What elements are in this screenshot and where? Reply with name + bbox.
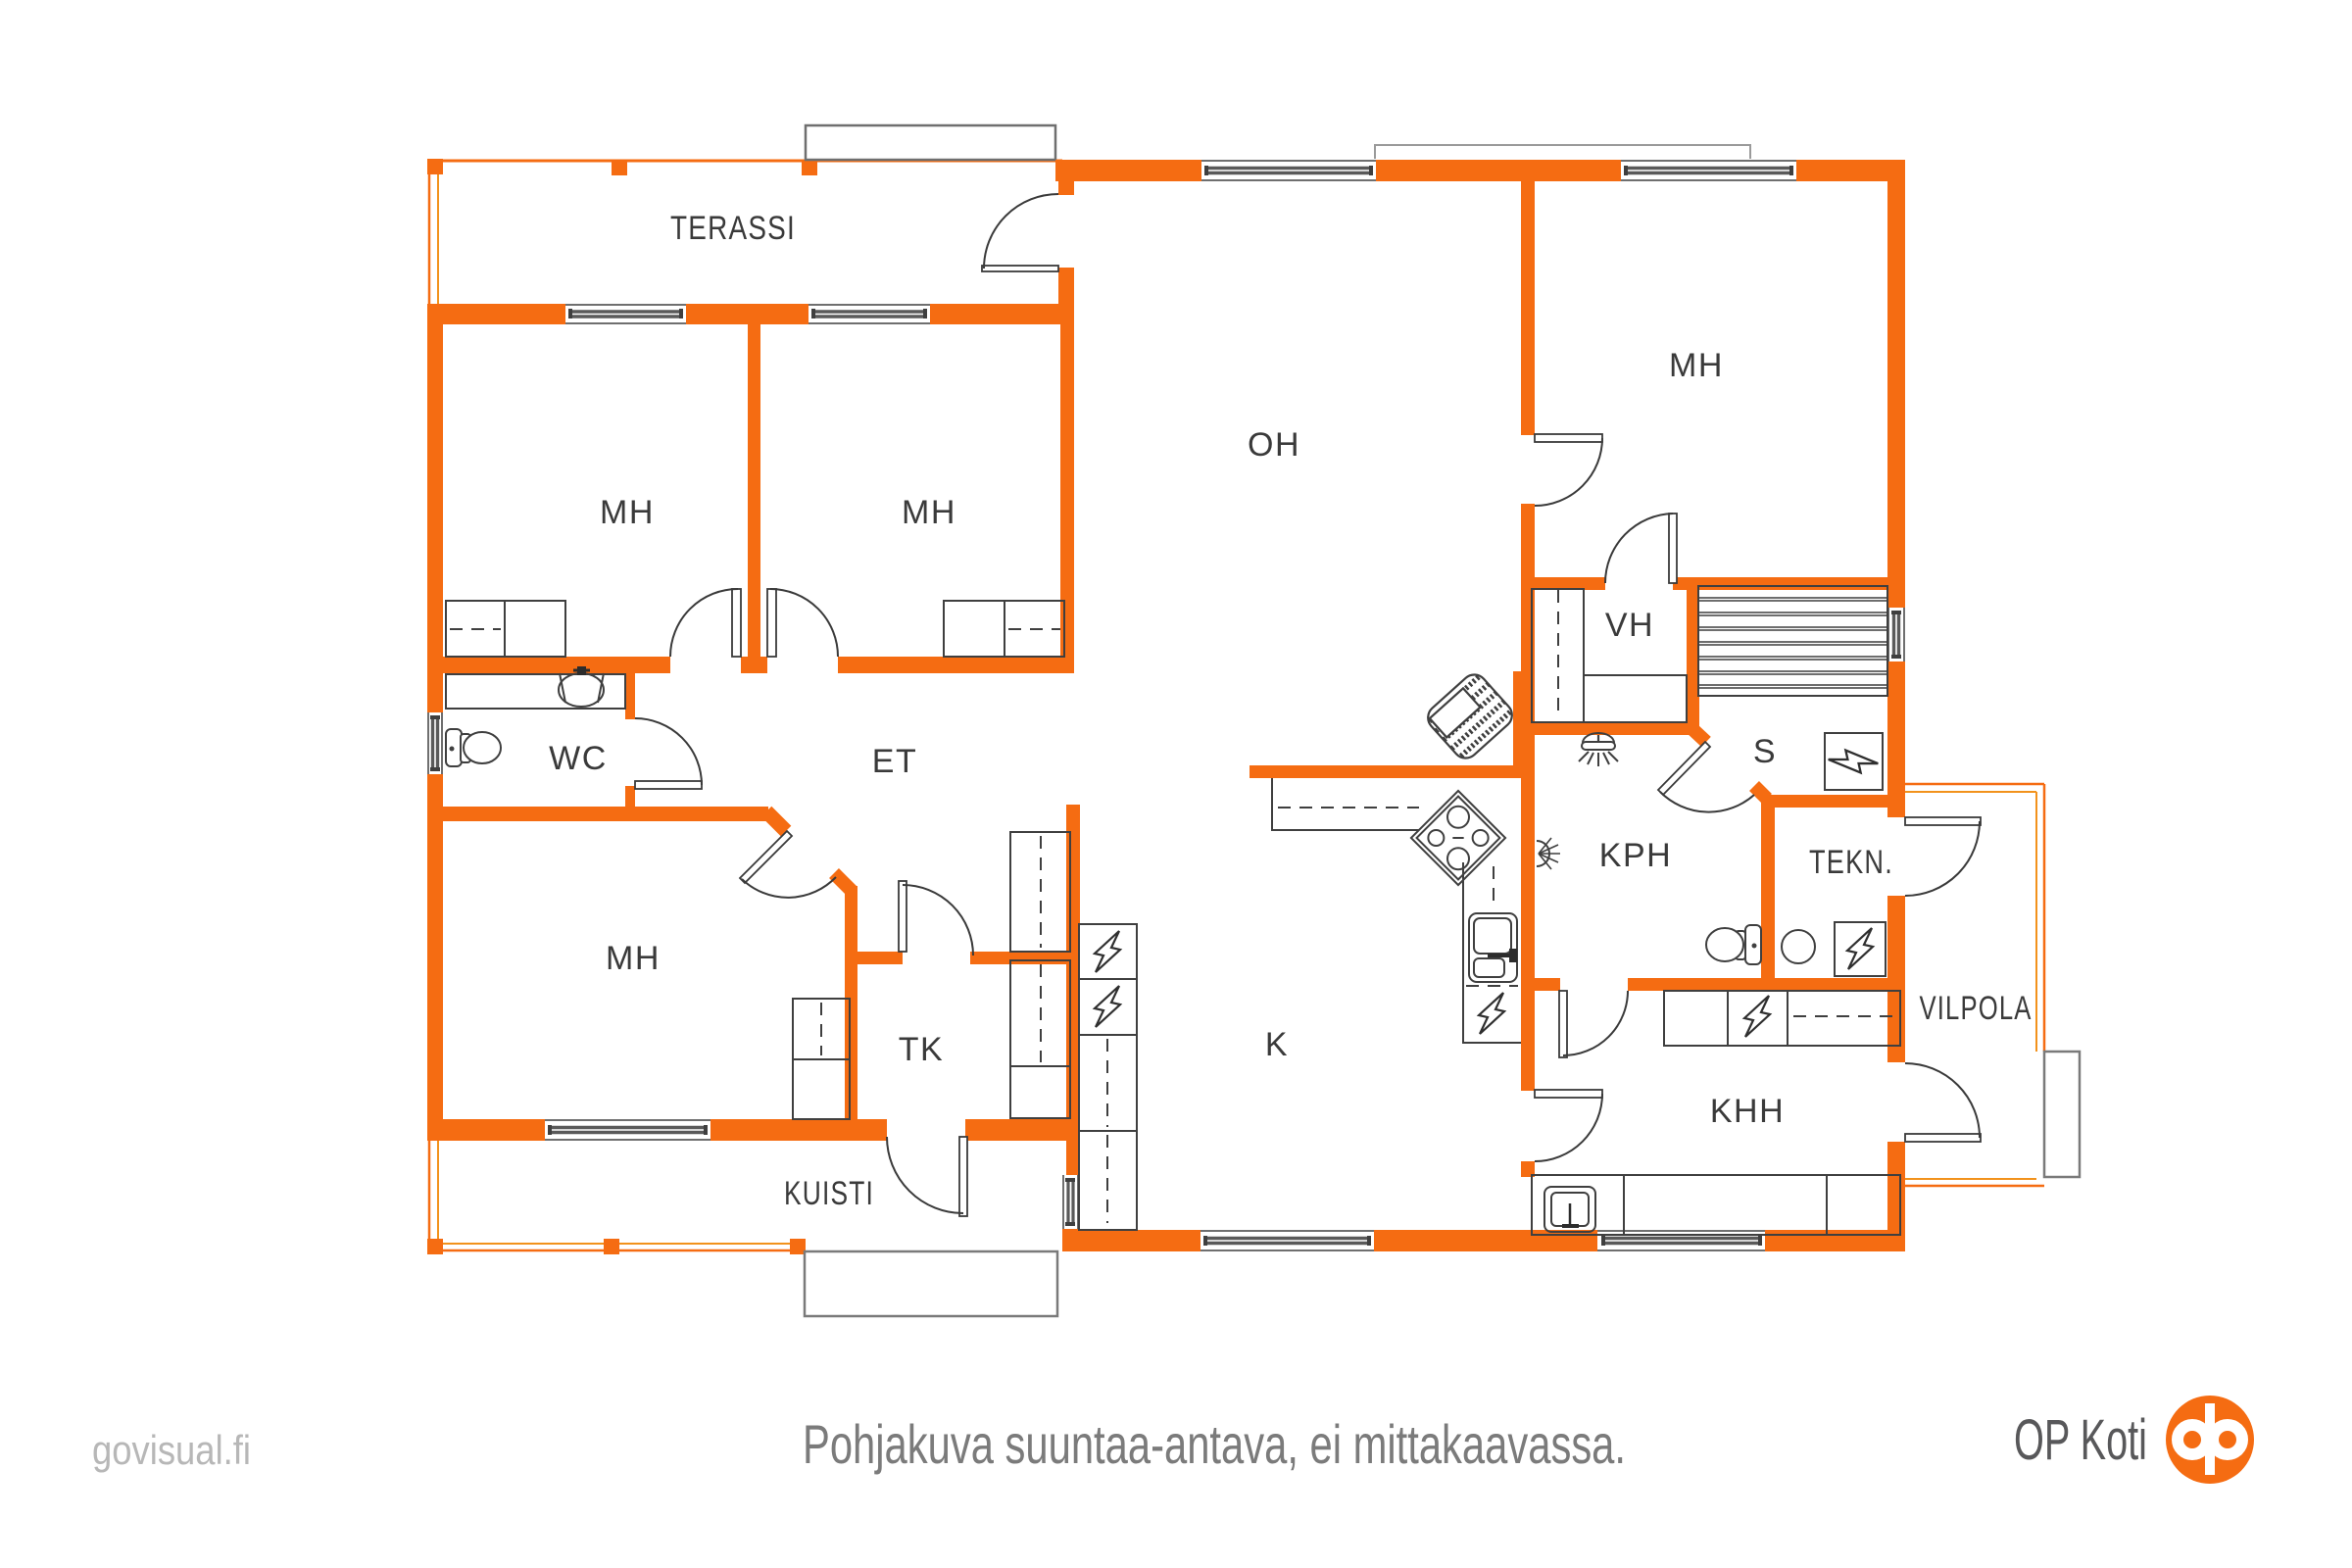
svg-text:MH: MH (606, 940, 661, 977)
svg-text:VILPOLA: VILPOLA (1920, 990, 2033, 1027)
svg-text:TEKN.: TEKN. (1809, 844, 1893, 881)
svg-text:TK: TK (899, 1031, 944, 1068)
svg-text:KUISTI: KUISTI (784, 1175, 874, 1212)
svg-text:VH: VH (1605, 607, 1654, 644)
svg-text:MH: MH (1669, 347, 1724, 384)
svg-text:WC: WC (549, 740, 608, 777)
svg-text:K: K (1265, 1026, 1289, 1063)
svg-text:KPH: KPH (1599, 837, 1672, 874)
svg-text:govisual.fi: govisual.fi (92, 1427, 251, 1473)
svg-text:TERASSI: TERASSI (670, 210, 796, 247)
svg-text:OP Koti: OP Koti (2014, 1408, 2147, 1472)
svg-text:MH: MH (600, 494, 655, 531)
svg-text:S: S (1753, 733, 1777, 770)
svg-text:KHH: KHH (1710, 1093, 1785, 1130)
svg-text:Pohjakuva suuntaa-antava, ei m: Pohjakuva suuntaa-antava, ei mittakaavas… (803, 1413, 1626, 1475)
svg-text:ET: ET (872, 743, 917, 780)
svg-text:MH: MH (902, 494, 956, 531)
svg-text:OH: OH (1248, 426, 1300, 464)
